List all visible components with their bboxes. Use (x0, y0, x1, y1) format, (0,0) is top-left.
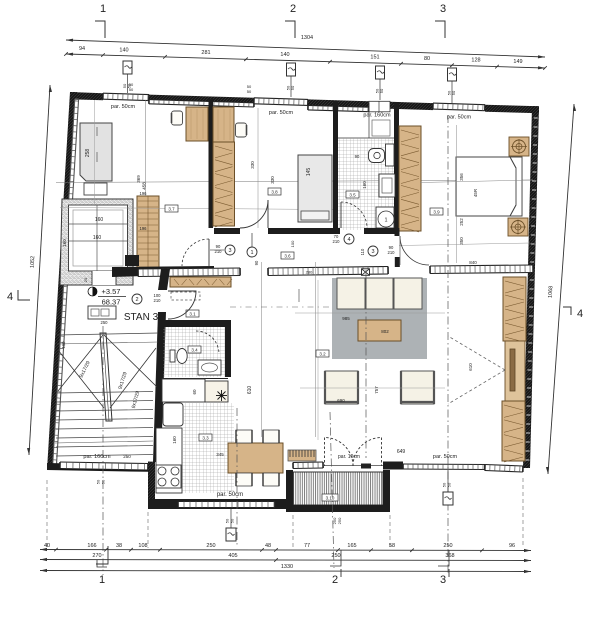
svg-text:210: 210 (388, 250, 396, 255)
svg-text:3.10: 3.10 (326, 496, 335, 501)
svg-text:3.8: 3.8 (271, 190, 278, 195)
svg-text:140: 140 (280, 52, 289, 58)
svg-text:3.9: 3.9 (433, 210, 440, 215)
svg-text:60: 60 (192, 389, 197, 395)
svg-text:50: 50 (290, 85, 295, 90)
svg-text:45R: 45R (473, 188, 478, 197)
svg-text:3.5: 3.5 (349, 193, 356, 198)
svg-text:50: 50 (230, 518, 235, 523)
svg-text:160: 160 (95, 217, 104, 223)
svg-text:50: 50 (451, 90, 456, 95)
svg-text:3.7: 3.7 (168, 207, 175, 212)
svg-text:150: 150 (61, 341, 66, 349)
svg-text:196: 196 (140, 191, 148, 196)
svg-text:405: 405 (228, 553, 237, 559)
svg-text:330: 330 (250, 161, 255, 169)
svg-text:par. 10cm: par. 10cm (338, 454, 360, 460)
svg-text:250: 250 (331, 553, 340, 559)
svg-text:610: 610 (247, 386, 253, 395)
svg-text:par. 50cm: par. 50cm (111, 104, 136, 110)
svg-text:160: 160 (62, 239, 67, 247)
svg-text:3.2: 3.2 (319, 352, 326, 357)
svg-text:610: 610 (468, 363, 473, 371)
svg-text:350: 350 (459, 237, 464, 245)
svg-text:3: 3 (371, 249, 374, 255)
svg-text:par. 50cm: par. 50cm (433, 454, 458, 460)
svg-text:140: 140 (119, 48, 128, 54)
svg-text:40: 40 (44, 543, 50, 549)
svg-text:50: 50 (129, 87, 134, 92)
svg-text:4: 4 (577, 308, 583, 320)
svg-text:2: 2 (135, 297, 138, 303)
svg-text:1068: 1068 (548, 286, 555, 299)
svg-text:690: 690 (337, 398, 345, 403)
svg-text:100: 100 (290, 240, 295, 247)
svg-text:145: 145 (306, 168, 312, 177)
svg-text:258: 258 (85, 149, 91, 158)
svg-text:250: 250 (101, 320, 109, 325)
svg-text:3.4: 3.4 (191, 348, 198, 353)
svg-text:par. 160cm: par. 160cm (363, 113, 391, 119)
svg-text:96: 96 (509, 543, 515, 549)
svg-text:840: 840 (469, 260, 477, 265)
svg-text:210: 210 (154, 298, 162, 303)
svg-text:2: 2 (332, 574, 338, 586)
svg-text:3.1: 3.1 (189, 312, 196, 317)
svg-text:458: 458 (142, 182, 147, 190)
svg-text:38: 38 (116, 543, 122, 549)
svg-text:250: 250 (443, 543, 452, 549)
svg-text:330: 330 (270, 176, 275, 184)
svg-text:3.3: 3.3 (202, 436, 209, 441)
svg-text:1052: 1052 (30, 256, 37, 269)
svg-text:210: 210 (333, 239, 341, 244)
svg-text:1: 1 (250, 250, 253, 256)
svg-text:151: 151 (370, 55, 379, 61)
svg-text:160: 160 (362, 181, 367, 189)
svg-text:4: 4 (347, 237, 350, 243)
svg-text:80: 80 (424, 56, 430, 62)
svg-text:1330: 1330 (281, 564, 293, 570)
svg-text:1: 1 (100, 3, 106, 15)
svg-text:3: 3 (228, 248, 231, 254)
svg-text:252: 252 (459, 218, 464, 226)
svg-text:160: 160 (172, 436, 177, 444)
svg-text:985: 985 (342, 316, 350, 321)
svg-text:+3.57: +3.57 (102, 287, 121, 296)
svg-text:par. 50cm: par. 50cm (269, 110, 294, 116)
svg-text:50: 50 (247, 89, 252, 94)
svg-text:90: 90 (355, 154, 360, 159)
svg-text:757: 757 (374, 386, 379, 394)
svg-text:250: 250 (337, 517, 342, 524)
svg-text:196: 196 (140, 226, 148, 231)
svg-text:68.37: 68.37 (102, 298, 121, 307)
svg-text:108: 108 (138, 543, 147, 549)
svg-text:4: 4 (7, 291, 13, 303)
svg-text:94: 94 (79, 46, 85, 52)
svg-text:802: 802 (381, 329, 389, 334)
svg-text:3: 3 (440, 574, 446, 586)
svg-text:356: 356 (459, 173, 464, 181)
svg-text:58: 58 (389, 543, 395, 549)
svg-text:48: 48 (265, 543, 271, 549)
svg-text:3.6: 3.6 (284, 254, 291, 259)
svg-text:STAN 3: STAN 3 (124, 312, 159, 323)
svg-text:77: 77 (304, 543, 310, 549)
svg-text:250: 250 (206, 543, 215, 549)
svg-text:281: 281 (201, 50, 210, 56)
svg-text:1: 1 (384, 218, 387, 224)
svg-text:50: 50 (447, 482, 452, 487)
svg-text:1: 1 (99, 574, 105, 586)
svg-text:20: 20 (83, 277, 88, 282)
svg-text:160: 160 (93, 235, 102, 241)
svg-text:110: 110 (360, 248, 365, 255)
svg-text:128: 128 (471, 58, 480, 64)
svg-text:165: 165 (347, 543, 356, 549)
svg-text:149: 149 (513, 59, 522, 65)
svg-text:368: 368 (445, 553, 454, 559)
svg-text:649: 649 (397, 449, 406, 455)
svg-text:50: 50 (379, 88, 384, 93)
svg-text:369: 369 (136, 175, 141, 183)
svg-text:1304: 1304 (301, 35, 313, 41)
svg-text:345: 345 (216, 452, 224, 457)
svg-text:par. 50cm: par. 50cm (447, 115, 472, 121)
svg-text:2: 2 (290, 3, 296, 15)
svg-text:280: 280 (306, 270, 313, 275)
svg-text:270: 270 (92, 553, 101, 559)
svg-text:90: 90 (254, 260, 259, 265)
svg-text:166: 166 (87, 543, 96, 549)
svg-text:3: 3 (440, 3, 446, 15)
